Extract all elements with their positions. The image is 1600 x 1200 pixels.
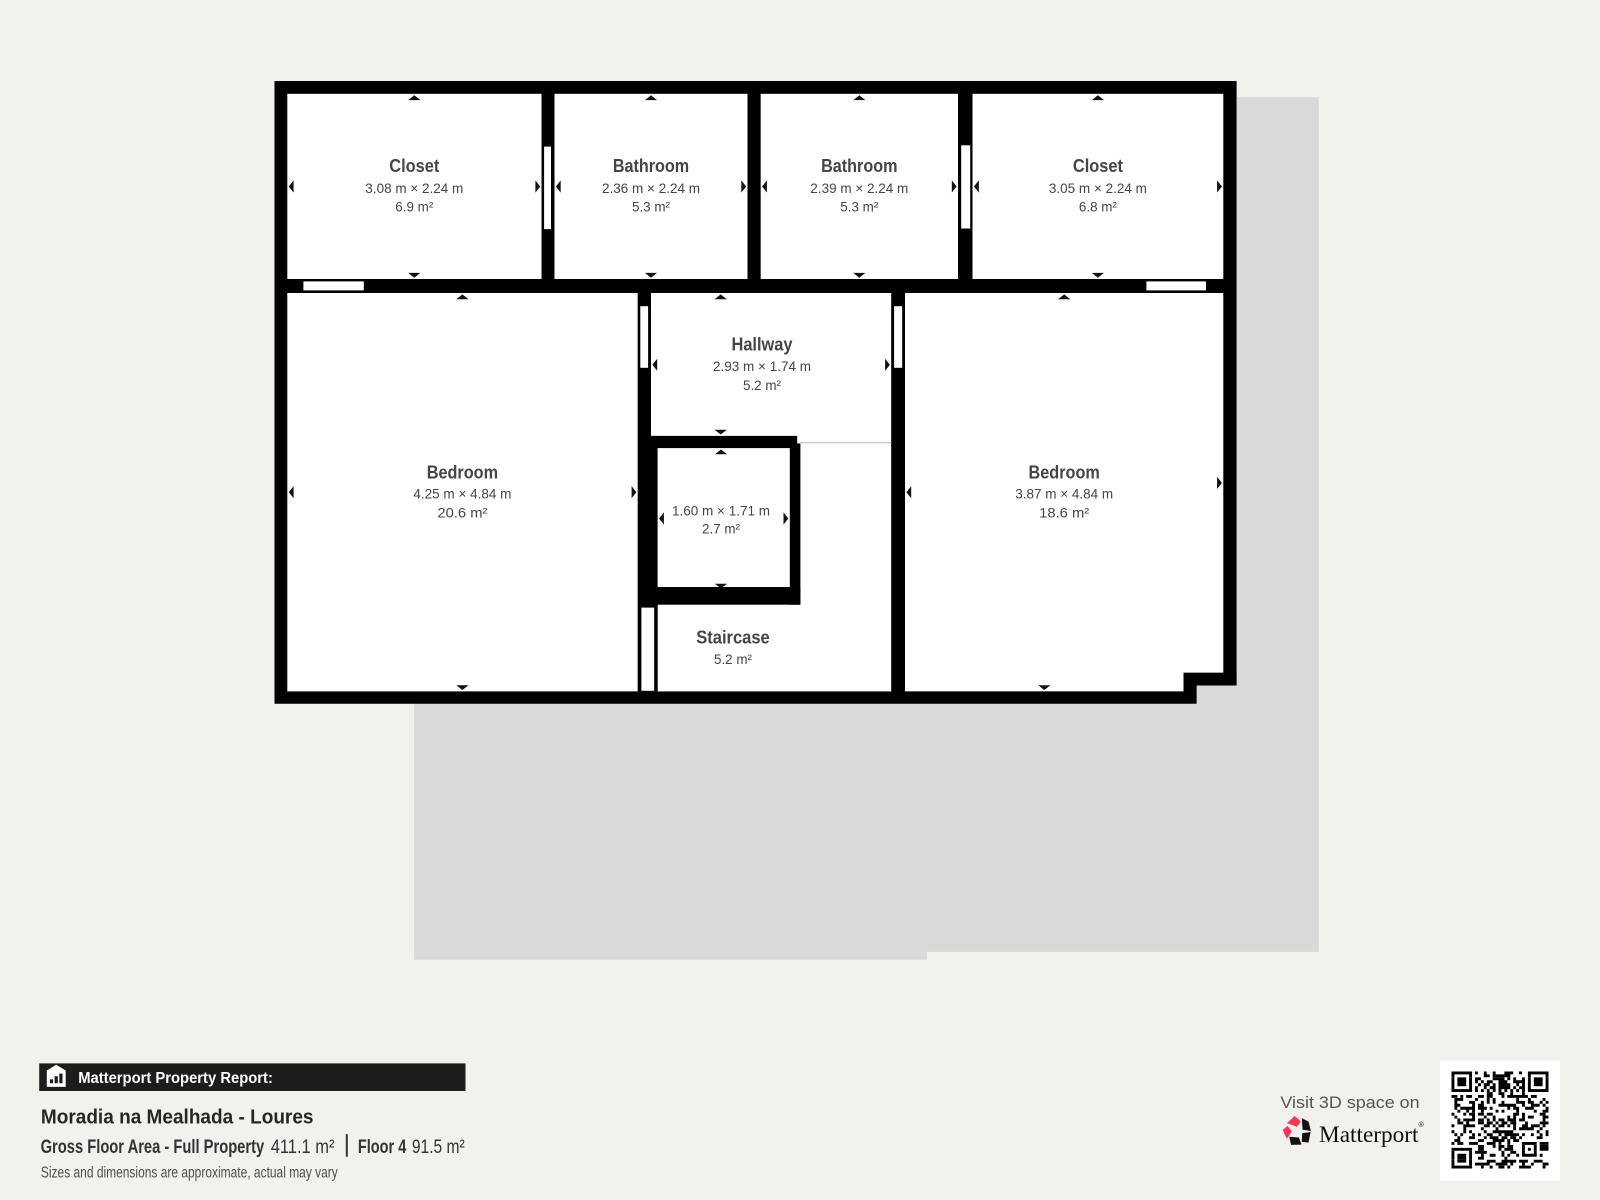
svg-text:Closet: Closet	[1073, 156, 1123, 176]
svg-text:Gross Floor Area - Full Proper: Gross Floor Area - Full Property	[41, 1137, 265, 1158]
svg-text:6.8 m²: 6.8 m²	[1079, 199, 1117, 215]
svg-text:Staircase: Staircase	[696, 628, 770, 648]
svg-text:3.87 m × 4.84 m: 3.87 m × 4.84 m	[1015, 485, 1113, 501]
svg-text:2.36 m × 2.24 m: 2.36 m × 2.24 m	[602, 180, 700, 196]
svg-text:5.3 m²: 5.3 m²	[840, 199, 878, 215]
svg-text:2.39 m × 2.24 m: 2.39 m × 2.24 m	[810, 180, 908, 196]
svg-text:Matterport Property Report:: Matterport Property Report:	[78, 1070, 273, 1087]
svg-text:4.25 m × 4.84 m: 4.25 m × 4.84 m	[413, 485, 511, 501]
svg-text:Bedroom: Bedroom	[1029, 463, 1100, 483]
svg-text:5.2 m²: 5.2 m²	[743, 377, 781, 393]
svg-text:411.1 m²: 411.1 m²	[271, 1137, 335, 1158]
svg-text:Bathroom: Bathroom	[821, 156, 897, 176]
svg-text:Bathroom: Bathroom	[613, 156, 689, 176]
svg-text:2.7 m²: 2.7 m²	[702, 521, 740, 537]
svg-text:5.3 m²: 5.3 m²	[632, 199, 670, 215]
svg-text:5.2 m²: 5.2 m²	[714, 651, 752, 667]
svg-text:Closet: Closet	[389, 156, 439, 176]
svg-text:Hallway: Hallway	[732, 334, 793, 354]
svg-text:Floor 4: Floor 4	[358, 1137, 407, 1158]
svg-text:Matterport: Matterport	[1319, 1122, 1419, 1147]
svg-text:20.6 m²: 20.6 m²	[437, 505, 487, 521]
svg-text:91.5 m²: 91.5 m²	[412, 1137, 465, 1158]
svg-text:1.60 m × 1.71 m: 1.60 m × 1.71 m	[672, 503, 770, 519]
svg-text:6.9 m²: 6.9 m²	[395, 199, 433, 215]
svg-text:18.6 m²: 18.6 m²	[1039, 505, 1089, 521]
svg-text:®: ®	[1419, 1121, 1425, 1129]
svg-text:Moradia na Mealhada - Loures: Moradia na Mealhada - Loures	[41, 1106, 314, 1128]
svg-text:3.08 m × 2.24 m: 3.08 m × 2.24 m	[365, 180, 463, 196]
svg-text:Visit 3D space on: Visit 3D space on	[1280, 1093, 1419, 1112]
svg-text:Sizes and dimensions are appro: Sizes and dimensions are approximate, ac…	[41, 1165, 338, 1182]
svg-text:Bedroom: Bedroom	[427, 463, 498, 483]
svg-text:3.05 m × 2.24 m: 3.05 m × 2.24 m	[1049, 180, 1147, 196]
svg-text:2.93 m × 1.74 m: 2.93 m × 1.74 m	[713, 358, 811, 374]
